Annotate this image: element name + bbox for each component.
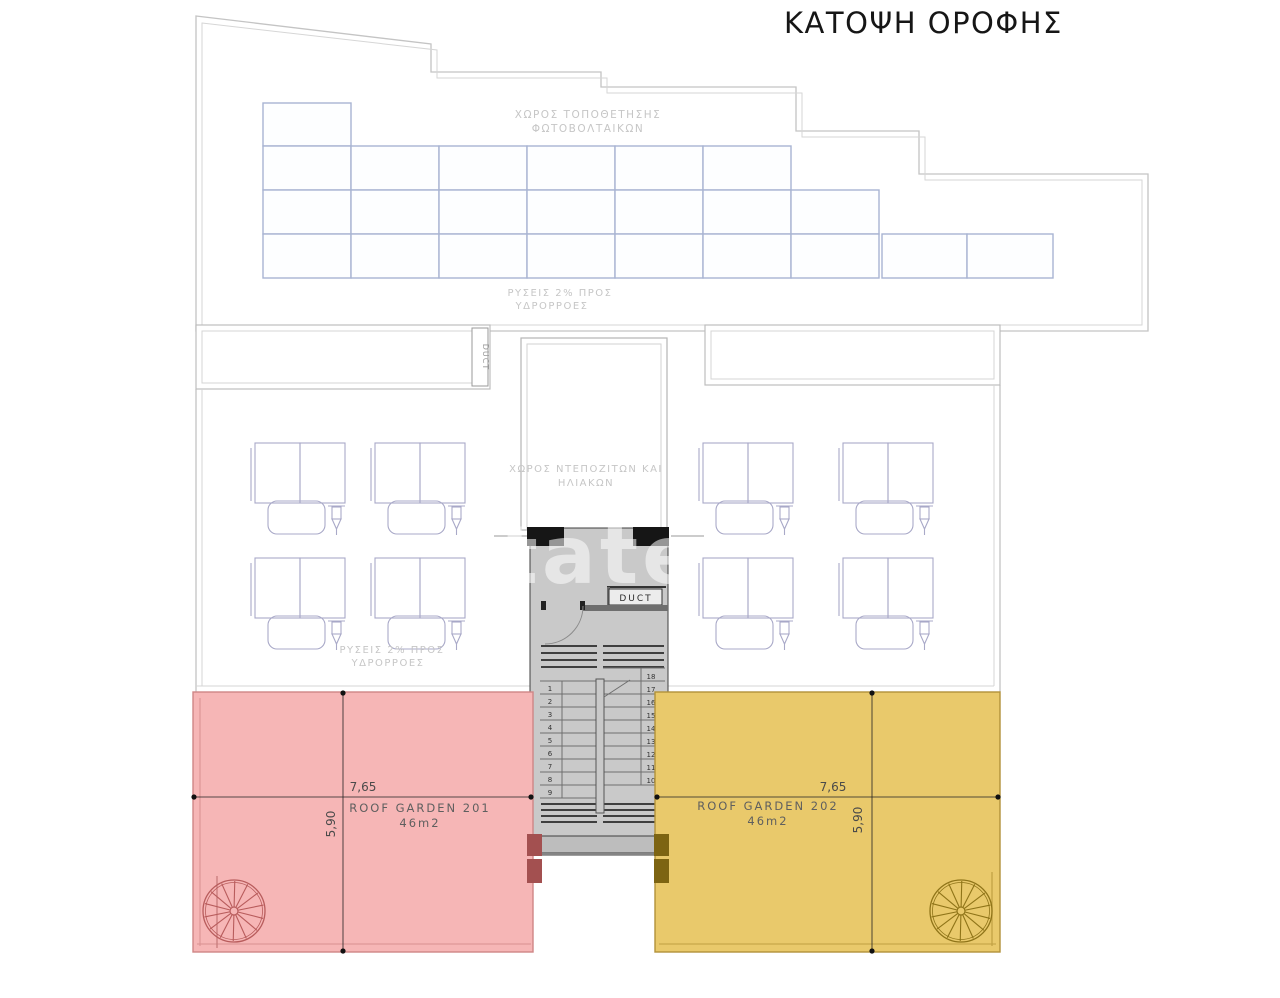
roof-plan-drawing: ΧΩΡΟΣ ΤΟΠΟΘΕΤΗΣΗΣ ΦΩΤΟΒΟΛΤΑΙΚΩΝ ΡΥΣΕΙΣ 2… [0, 0, 1280, 998]
pv-panel [527, 234, 615, 278]
solar-tank [716, 501, 773, 534]
pv-panel [351, 234, 439, 278]
solar-panel-left [703, 558, 748, 618]
valve-funnel [332, 519, 341, 529]
dim-dot [528, 794, 533, 799]
valve-body [452, 507, 461, 519]
solar-panel-left [703, 443, 748, 503]
stair-step-number: 5 [548, 737, 552, 745]
pv-panel [263, 103, 351, 146]
duct-band-label: DUCT [481, 344, 490, 371]
solar-panel-left [375, 558, 420, 618]
pv-panel [703, 234, 791, 278]
spiral-stair-spoke [961, 881, 962, 906]
valve-funnel [780, 634, 789, 644]
garden-202-width-dim: 7,65 [820, 780, 847, 794]
tanks-area-label-line2: ΗΛΙΑΚΩΝ [558, 478, 614, 489]
band-left-outer [196, 325, 490, 389]
garden-202-height-dim: 5,90 [851, 807, 865, 834]
stair-step-number: 11 [647, 764, 656, 772]
valve-funnel [452, 519, 461, 529]
pv-panel [527, 190, 615, 234]
stair-step-number: 9 [548, 789, 552, 797]
garden-201-wall-block-upper [527, 834, 542, 856]
solar-panel-left [255, 558, 300, 618]
floor-plan-canvas: ΧΩΡΟΣ ΤΟΠΟΘΕΤΗΣΗΣ ΦΩΤΟΒΟΛΤΑΙΚΩΝ ΡΥΣΕΙΣ 2… [0, 0, 1280, 998]
page-title: ΚΑΤΟΨΗ ΟΡΟΦΗΣ [784, 6, 1063, 40]
dim-dot [869, 690, 874, 695]
solar-tank [856, 616, 913, 649]
pv-panel [263, 146, 351, 190]
solar-panel-left [843, 443, 888, 503]
roof-garden-201: 7,65 5,90 ROOF GARDEN 201 46m2 [191, 690, 542, 953]
solar-tank [268, 501, 325, 534]
pv-panel [351, 190, 439, 234]
stair-step-number: 12 [647, 751, 656, 759]
garden-201-wall-block-lower [527, 859, 542, 883]
pv-panel [439, 146, 527, 190]
stair-step-number: 8 [548, 776, 552, 784]
dim-dot [654, 794, 659, 799]
solar-panel-right [420, 558, 465, 618]
valve-funnel [920, 634, 929, 644]
roof-garden-202: 7,65 5,90 ROOF GARDEN 202 46m2 [654, 690, 1001, 953]
pv-panel [439, 190, 527, 234]
solar-tank [716, 616, 773, 649]
shaft-upper-outer [521, 338, 667, 530]
stair-step-number: 15 [647, 712, 656, 720]
valve-body [780, 507, 789, 519]
dim-dot [340, 690, 345, 695]
stair-step-number: 3 [548, 711, 552, 719]
solar-heater-unit [699, 558, 793, 650]
roof-band-right [705, 325, 1000, 385]
valve-funnel [780, 519, 789, 529]
garden-202-wall-block-lower [654, 859, 669, 883]
solar-panel-right [300, 443, 345, 503]
pv-panel-grid [263, 103, 1053, 278]
solar-heater-unit [371, 443, 465, 535]
solar-tank [268, 616, 325, 649]
valve-body [920, 622, 929, 634]
stair-step-number: 13 [647, 738, 656, 746]
stair-step-number: 18 [647, 673, 656, 681]
solar-panel-left [255, 443, 300, 503]
valve-body [452, 622, 461, 634]
stair-step-number: 17 [647, 686, 656, 694]
dim-dot [340, 948, 345, 953]
pv-area-label-line1: ΧΩΡΟΣ ΤΟΠΟΘΕΤΗΣΗΣ [515, 109, 662, 121]
solar-panel-right [420, 443, 465, 503]
pv-panel [615, 234, 703, 278]
garden-202-name: ROOF GARDEN 202 [697, 799, 838, 813]
pv-panel [967, 234, 1053, 278]
garden-202-area-value: 46m2 [747, 814, 788, 828]
pv-panel [882, 234, 967, 278]
pv-panel [703, 190, 791, 234]
slope-lower-label-line2: ΥΔΡΟΡΡΟΕΣ [351, 658, 425, 669]
garden-201-width-dim: 7,65 [350, 780, 377, 794]
garden-202-wall-block-upper [654, 834, 669, 856]
valve-body [332, 507, 341, 519]
slope-upper-label-line1: ΡΥΣΕΙΣ 2% ΠΡΟΣ [507, 288, 612, 299]
stair-step-number: 1 [548, 685, 552, 693]
landing-wall [583, 605, 668, 611]
stair-step-number: 10 [647, 777, 656, 785]
spiral-stair-spoke [234, 881, 235, 906]
pv-panel [263, 190, 351, 234]
pv-panel [439, 234, 527, 278]
pv-area-label-line2: ΦΩΤΟΒΟΛΤΑΙΚΩΝ [532, 123, 645, 135]
pv-panel [263, 234, 351, 278]
stair-step-number: 4 [548, 724, 553, 732]
slope-lower-label-line1: ΡΥΣΕΙΣ 2% ΠΡΟΣ [339, 645, 444, 656]
dim-dot [995, 794, 1000, 799]
stair-step-number: 6 [548, 750, 553, 758]
garden-201-height-dim: 5,90 [324, 811, 338, 838]
stair-bottom-band [534, 836, 668, 853]
garden-202-area [655, 692, 1000, 952]
watermark-text: tate [500, 509, 701, 602]
pv-panel [615, 190, 703, 234]
solar-panel-right [888, 558, 933, 618]
solar-panel-left [375, 443, 420, 503]
solar-heater-unit [699, 443, 793, 535]
duct-band-left: DUCT [196, 325, 490, 389]
pv-panel [527, 146, 615, 190]
stair-step-number: 7 [548, 763, 552, 771]
stair-divider-wall [596, 679, 604, 813]
solar-panel-left [843, 558, 888, 618]
pv-panel [615, 146, 703, 190]
door-jamb-left [541, 601, 546, 610]
solar-heater-unit [839, 443, 933, 535]
band-right-outer [705, 325, 1000, 385]
stair-step-number: 2 [548, 698, 552, 706]
pv-panel [703, 146, 791, 190]
solar-heater-unit [371, 558, 465, 650]
solar-panel-right [748, 443, 793, 503]
pv-panel [351, 146, 439, 190]
valve-body [920, 507, 929, 519]
solar-panel-right [748, 558, 793, 618]
solar-heater-unit [839, 558, 933, 650]
solar-heater-unit [251, 443, 345, 535]
spiral-stair-spoke [960, 915, 961, 940]
solar-panel-right [888, 443, 933, 503]
solar-panel-right [300, 558, 345, 618]
valve-funnel [452, 634, 461, 644]
garden-201-area-value: 46m2 [399, 816, 440, 830]
tanks-area-label-line1: ΧΩΡΟΣ ΝΤΕΠΟΖΙΤΩΝ ΚΑΙ [509, 464, 663, 475]
slope-upper-label-line2: ΥΔΡΟΡΡΟΕΣ [515, 301, 589, 312]
solar-tank [388, 501, 445, 534]
valve-body [332, 622, 341, 634]
dim-dot [869, 948, 874, 953]
valve-body [780, 622, 789, 634]
spiral-stair-spoke [233, 915, 234, 940]
valve-funnel [920, 519, 929, 529]
dim-dot [191, 794, 196, 799]
solar-heater-unit [251, 558, 345, 650]
garden-201-name: ROOF GARDEN 201 [349, 801, 490, 815]
valve-funnel [332, 634, 341, 644]
solar-tank [856, 501, 913, 534]
stair-shaft-upper [521, 338, 667, 530]
pv-panel [791, 234, 879, 278]
pv-panel [791, 190, 879, 234]
